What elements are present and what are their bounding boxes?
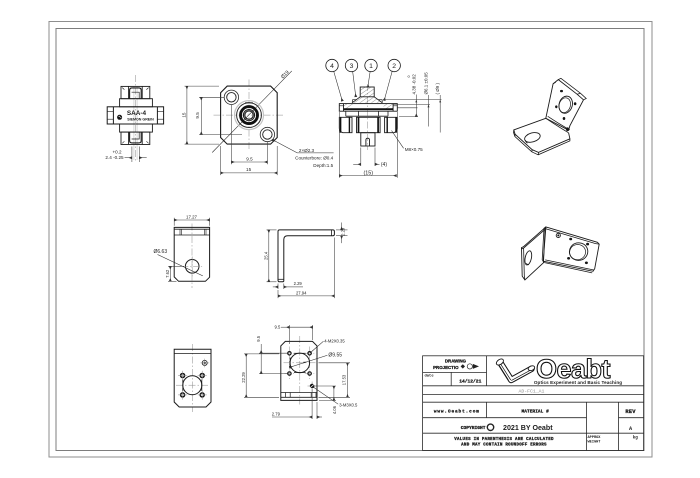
svg-text:4-M2X0.35: 4-M2X0.35 (324, 339, 345, 344)
svg-text:0: 0 (407, 76, 411, 78)
svg-text:(15): (15) (364, 170, 374, 176)
svg-text:Ø6.63: Ø6.63 (154, 249, 168, 255)
svg-text:Ø9.55: Ø9.55 (328, 353, 342, 359)
svg-text:2: 2 (392, 63, 396, 70)
svg-text:AND MAY CONTAIN ROUNDOFF ERROR: AND MAY CONTAIN ROUNDOFF ERRORS (461, 443, 547, 447)
svg-text:WEIGHT: WEIGHT (588, 440, 602, 444)
svg-text:9.5: 9.5 (275, 325, 281, 330)
svg-text:date: date (425, 374, 435, 379)
svg-text:2.4 -0.25: 2.4 -0.25 (105, 155, 124, 160)
svg-text:27.94: 27.94 (296, 291, 307, 296)
svg-text:4.06: 4.06 (332, 405, 337, 414)
svg-text:3-M3X0.5: 3-M3X0.5 (339, 403, 358, 408)
svg-text:9.5: 9.5 (195, 112, 200, 119)
svg-text:REV: REV (625, 409, 636, 415)
svg-text:VALUES IN PARENTHESIS ARE CALC: VALUES IN PARENTHESIS ARE CALCULATED (454, 438, 554, 442)
svg-text:22.29: 22.29 (241, 372, 246, 383)
svg-text:Ø6.1 ±0.05: Ø6.1 ±0.05 (423, 72, 428, 95)
svg-text:2×Ø2.3: 2×Ø2.3 (299, 148, 315, 153)
svg-text:SAA-4: SAA-4 (127, 110, 147, 117)
svg-text:Counterbore: Ø0.4: Counterbore: Ø0.4 (295, 156, 333, 161)
svg-text:17.53: 17.53 (341, 374, 346, 385)
svg-text:25.4: 25.4 (264, 251, 269, 260)
svg-text:4: 4 (330, 63, 334, 70)
svg-text:2.79: 2.79 (272, 411, 281, 416)
svg-text:2.29: 2.29 (294, 281, 303, 286)
svg-text:(4): (4) (381, 162, 387, 168)
svg-text:7.62: 7.62 (165, 269, 170, 278)
svg-text:DRAWING: DRAWING (445, 359, 467, 364)
svg-text:2.29: 2.29 (340, 227, 345, 236)
svg-text:MATERIAL #: MATERIAL # (522, 409, 550, 414)
svg-text:+0.2: +0.2 (112, 150, 122, 155)
svg-text:kg: kg (633, 435, 639, 440)
svg-text:17.27: 17.27 (186, 214, 198, 219)
svg-text:( Ø9 ): ( Ø9 ) (435, 82, 440, 94)
svg-text:2021 BY Oeabt: 2021 BY Oeabt (503, 424, 553, 432)
svg-text:PROJECTIO: PROJECTIO (433, 365, 459, 370)
svg-text:1: 1 (369, 63, 373, 70)
svg-text:4.38 -0.02: 4.38 -0.02 (412, 74, 417, 95)
svg-text:3: 3 (350, 63, 354, 70)
svg-text:Optics Experiment and Basic Te: Optics Experiment and Basic Teaching (534, 380, 622, 385)
svg-text:14/12/21: 14/12/21 (459, 379, 481, 385)
svg-text:9.5: 9.5 (246, 157, 253, 162)
svg-text:AD-FC1_A1: AD-FC1_A1 (519, 388, 545, 394)
svg-text:www.Oeabt.com: www.Oeabt.com (434, 409, 480, 414)
svg-text:15: 15 (182, 112, 187, 118)
svg-text:9.5: 9.5 (256, 335, 261, 341)
svg-text:Depth:1.5: Depth:1.5 (313, 163, 333, 168)
svg-text:15: 15 (246, 167, 252, 172)
svg-text:SIEMON GREIN: SIEMON GREIN (127, 117, 154, 121)
svg-text:COPYRIGHT: COPYRIGHT (461, 425, 486, 431)
svg-text:M8×0.75: M8×0.75 (405, 147, 423, 152)
